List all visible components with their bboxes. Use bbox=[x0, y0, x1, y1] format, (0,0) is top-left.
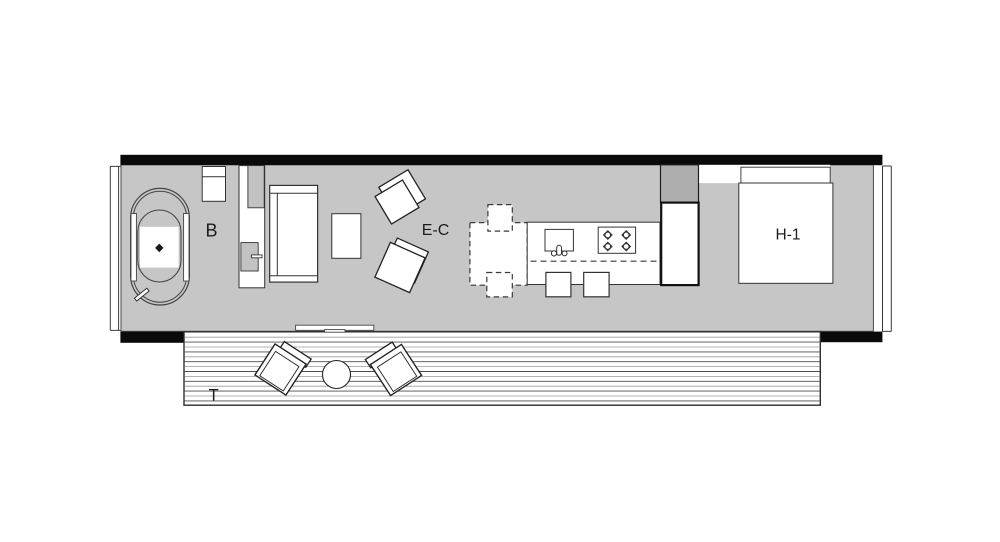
svg-text:H-1: H-1 bbox=[776, 226, 801, 243]
svg-text:T: T bbox=[209, 386, 219, 404]
svg-text:B: B bbox=[205, 220, 217, 240]
svg-text:E-C: E-C bbox=[422, 222, 450, 239]
